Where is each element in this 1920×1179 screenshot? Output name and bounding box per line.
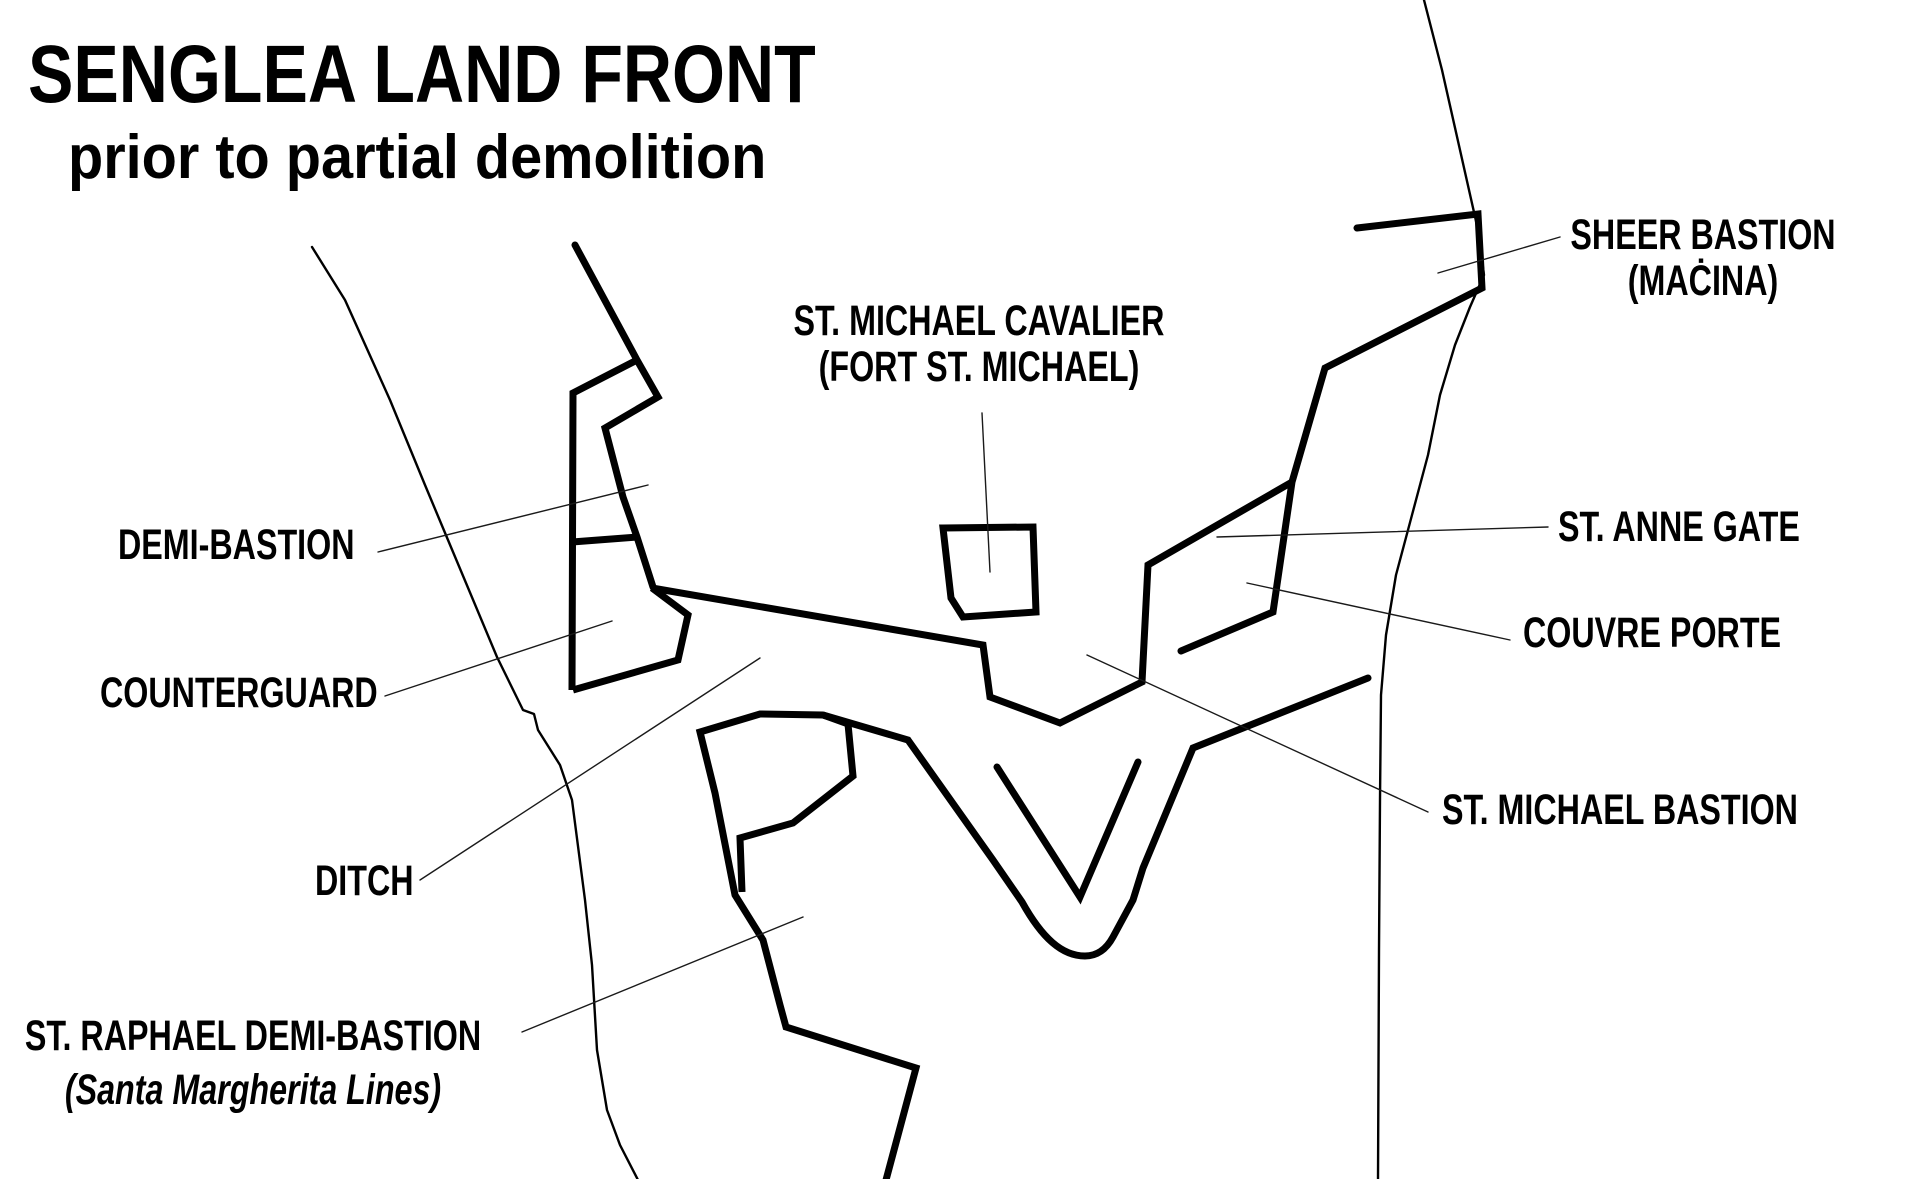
label-st-raphael-line2: (Santa Margherita Lines) [25, 1064, 481, 1118]
leader-st-anne-gate [1217, 527, 1548, 537]
label-sheer-bastion: SHEER BASTION (MAĊINA) [1570, 212, 1835, 305]
label-st-michael-cavalier-line1: ST. MICHAEL CAVALIER [794, 298, 1165, 344]
leader-st-michael-bastion [1087, 655, 1428, 812]
leader-couvre-porte [1247, 583, 1510, 640]
label-st-anne-gate: ST. ANNE GATE [1558, 504, 1800, 550]
wall-inner-chevron [997, 762, 1138, 897]
label-sheer-bastion-line1: SHEER BASTION [1570, 212, 1835, 258]
wall-counterguard-divider [572, 537, 637, 542]
label-counterguard: COUNTERGUARD [100, 670, 378, 716]
page-subtitle: prior to partial demolition [68, 122, 766, 193]
coastline-east [1378, 0, 1484, 1179]
wall-main-front-curtain [652, 482, 1292, 723]
wall-outer-tenaille [823, 678, 1368, 956]
label-demi-bastion: DEMI-BASTION [118, 522, 354, 568]
label-couvre-porte: COUVRE PORTE [1523, 610, 1781, 656]
label-st-raphael-line1: ST. RAPHAEL DEMI-BASTION [25, 1010, 481, 1064]
label-st-raphael-demi-bastion: ST. RAPHAEL DEMI-BASTION (Santa Margheri… [25, 1010, 481, 1118]
label-st-michael-cavalier-line2: (FORT ST. MICHAEL) [794, 344, 1165, 390]
senglea-land-front-diagram: SENGLEA LAND FRONT prior to partial demo… [0, 0, 1920, 1179]
label-ditch: DITCH [315, 858, 414, 904]
wall-st-raphael-gorge [740, 715, 853, 892]
wall-demi-bastion-west-flank [572, 360, 637, 690]
leader-sheer-bastion [1438, 237, 1560, 273]
leader-st-michael-cavalier [982, 413, 990, 572]
label-st-michael-bastion: ST. MICHAEL BASTION [1442, 787, 1798, 833]
leader-st-raphael [522, 917, 803, 1032]
wall-counterguard-south-edge [573, 588, 688, 690]
wall-sheer-bastion-and-couvre-porte [1181, 214, 1482, 651]
label-st-michael-cavalier: ST. MICHAEL CAVALIER (FORT ST. MICHAEL) [794, 298, 1165, 391]
label-sheer-bastion-line2: (MAĊINA) [1570, 258, 1835, 304]
page-title: SENGLEA LAND FRONT [28, 28, 816, 122]
leader-counterguard [385, 621, 612, 696]
